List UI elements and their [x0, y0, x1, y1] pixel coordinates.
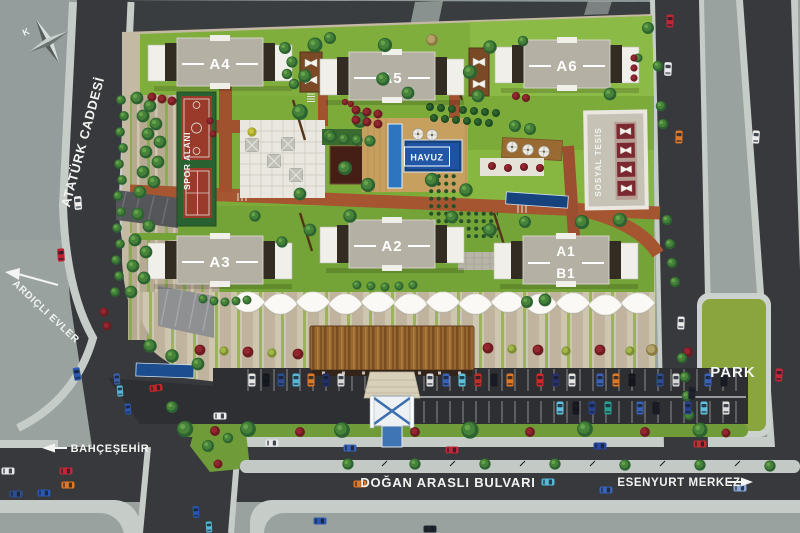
building-a3-label: A3: [209, 254, 230, 271]
parasol-deck: [502, 137, 563, 160]
lap-pool: [388, 124, 402, 188]
building-a2-label: A2: [381, 238, 402, 255]
building-a1-label: A1: [556, 244, 575, 259]
street-label-dogan-arasli: DOĞAN ARASLI BULVARI: [360, 475, 535, 490]
direction-label-bahcesehir: BAHÇEŞEHİR: [71, 442, 150, 455]
direction-esenyurt-merkez: ESENYURT MERKEZ: [617, 477, 753, 489]
water-feature: [136, 363, 194, 378]
area-label-park: PARK: [710, 364, 755, 381]
site-plan: A4 A5 A6 A3: [0, 0, 800, 533]
building-a4-label: A4: [209, 56, 230, 73]
area-label-havuz: HAVUZ: [410, 153, 443, 163]
social-facility: [583, 109, 649, 210]
site-plan-canvas: A4 A5 A6 A3: [0, 0, 800, 533]
building-b1-label: B1: [556, 266, 575, 281]
building-a6-label: A6: [556, 58, 577, 75]
area-label-spor-alani: SPOR ALANI: [182, 132, 192, 190]
entrance-steps: [364, 372, 420, 398]
area-label-sosyal-tesis: SOSYAL TESİS: [594, 127, 603, 196]
road-median: [240, 460, 800, 473]
direction-label-esenyurt-merkez: ESENYURT MERKEZ: [617, 477, 740, 489]
